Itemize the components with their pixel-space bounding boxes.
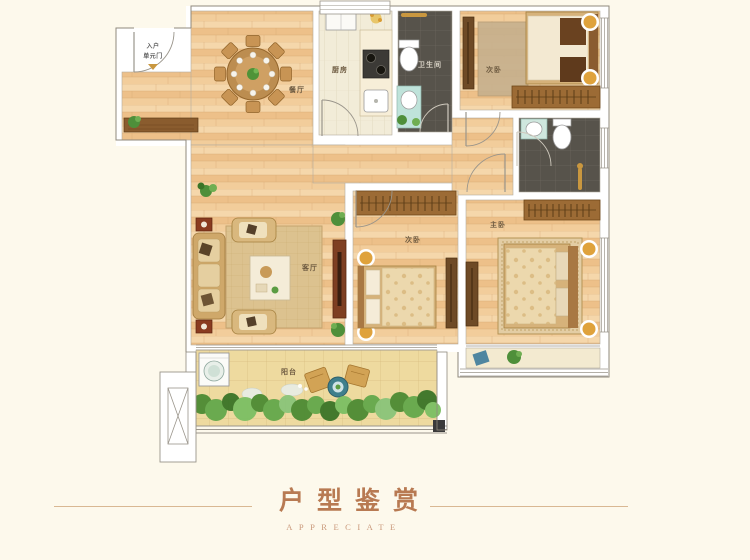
bedroom-mid-label: 次卧 <box>405 235 421 244</box>
toilet-icon <box>400 47 418 71</box>
hallway-floor <box>452 118 513 195</box>
toilet-icon <box>553 125 571 149</box>
window-icon <box>600 18 609 88</box>
window-icon <box>600 128 609 168</box>
entrance-label-line1: 入户 <box>145 42 159 50</box>
caption-block: 户型鉴赏 APPRECIATE <box>54 481 628 532</box>
lamp-icon <box>583 323 596 336</box>
lamp-icon <box>360 252 373 265</box>
plant-icon <box>397 115 407 125</box>
gold-pillow-icon <box>584 72 597 85</box>
plant-icon <box>272 287 279 294</box>
rug <box>478 22 528 96</box>
divider-line-left <box>54 506 252 507</box>
floorplan-page: 入户 单元门 餐厅 厨房 卫生间 次卧 次卧 主卧 客厅 阳台 户型鉴赏 APP… <box>0 0 750 560</box>
floor-plan-svg: 入户 单元门 餐厅 厨房 卫生间 次卧 次卧 主卧 客厅 阳台 <box>0 0 750 560</box>
bathroom-label: 卫生间 <box>418 60 442 69</box>
corridor-floor <box>313 145 460 183</box>
towel-bar-icon <box>401 13 427 17</box>
entrance-label-line2: 单元门 <box>143 52 163 60</box>
lamp-icon <box>583 243 596 256</box>
dining-label: 餐厅 <box>288 85 305 94</box>
master-label: 主卧 <box>490 220 506 229</box>
stove-icon <box>363 50 389 78</box>
floor-plan-image: 入户 单元门 餐厅 厨房 卫生间 次卧 次卧 主卧 客厅 阳台 <box>0 0 750 560</box>
railing <box>186 426 447 433</box>
towel-bar-icon <box>578 168 582 190</box>
bedroom-top-label: 次卧 <box>486 65 502 74</box>
balcony-label: 阳台 <box>281 367 297 376</box>
divider-line-right <box>430 506 628 507</box>
headboard <box>568 246 578 328</box>
living-label: 客厅 <box>301 263 318 272</box>
window-icon <box>600 238 609 332</box>
kitchen-window-icon <box>320 1 390 14</box>
gold-pillow-icon <box>584 16 597 29</box>
page-title: 户型鉴赏 <box>279 481 416 517</box>
kitchen-label: 厨房 <box>332 65 348 74</box>
headboard <box>358 266 364 328</box>
page-subtitle: APPRECIATE <box>272 522 416 532</box>
coffee-table <box>250 256 290 300</box>
